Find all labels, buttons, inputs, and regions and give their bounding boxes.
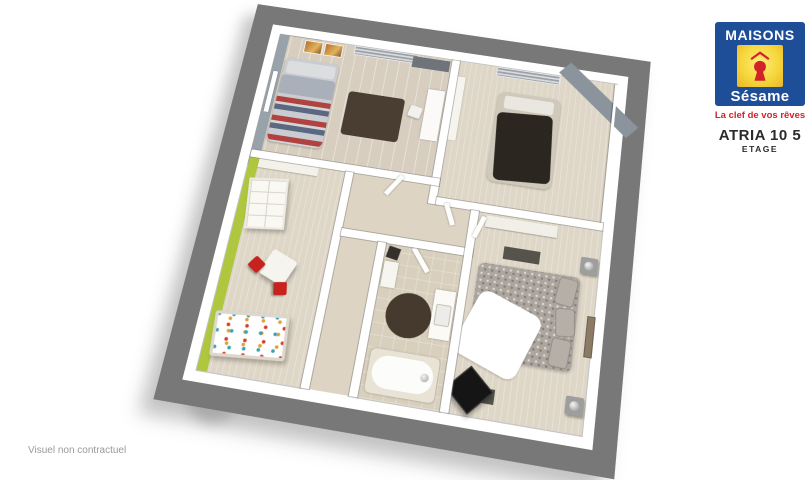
keyhole-house-icon: [737, 45, 783, 87]
plan-subtitle: ETAGE: [700, 144, 811, 154]
logo-word-maisons: MAISONS: [715, 27, 805, 43]
toddler-bed: [209, 310, 290, 362]
nightstand: [579, 257, 598, 276]
sink-basin: [433, 304, 452, 328]
desk-chair: [407, 105, 423, 120]
logo-word-sesame: Sésame: [715, 88, 805, 105]
maisons-sesame-logo: MAISONS Sésame: [715, 22, 805, 106]
pillow: [553, 276, 579, 309]
pillow: [547, 336, 573, 370]
bathroom-door: [412, 247, 430, 274]
round-rug: [382, 290, 435, 342]
lamp: [584, 261, 594, 271]
floor-plan: [153, 4, 650, 479]
cube-shelf: [244, 177, 289, 229]
page: MAISONS Sésame La clef de vos rêves ATRI…: [0, 0, 811, 480]
double-bed: [466, 262, 581, 372]
area-rug: [340, 91, 405, 143]
room-bedroom-2: [437, 61, 617, 223]
play-table: [258, 248, 298, 286]
bathtub: [364, 347, 441, 403]
bathroom-cabinet: [380, 261, 399, 289]
dark-duvet: [493, 112, 553, 185]
plan-title: ATRIA 10 5: [700, 127, 811, 144]
picture-frame: [303, 40, 324, 55]
laundry-hamper: [386, 246, 402, 261]
brand-tagline: La clef de vos rêves: [700, 110, 811, 121]
pillow: [555, 308, 575, 338]
picture-frame: [323, 43, 344, 58]
red-chair: [273, 282, 287, 295]
nightstand: [564, 395, 584, 417]
disclaimer-text: Visuel non contractuel: [28, 445, 126, 456]
lamp: [569, 400, 580, 411]
single-bed: [486, 91, 562, 190]
floor-mat: [503, 246, 541, 264]
wall-cabinet: [412, 56, 451, 72]
